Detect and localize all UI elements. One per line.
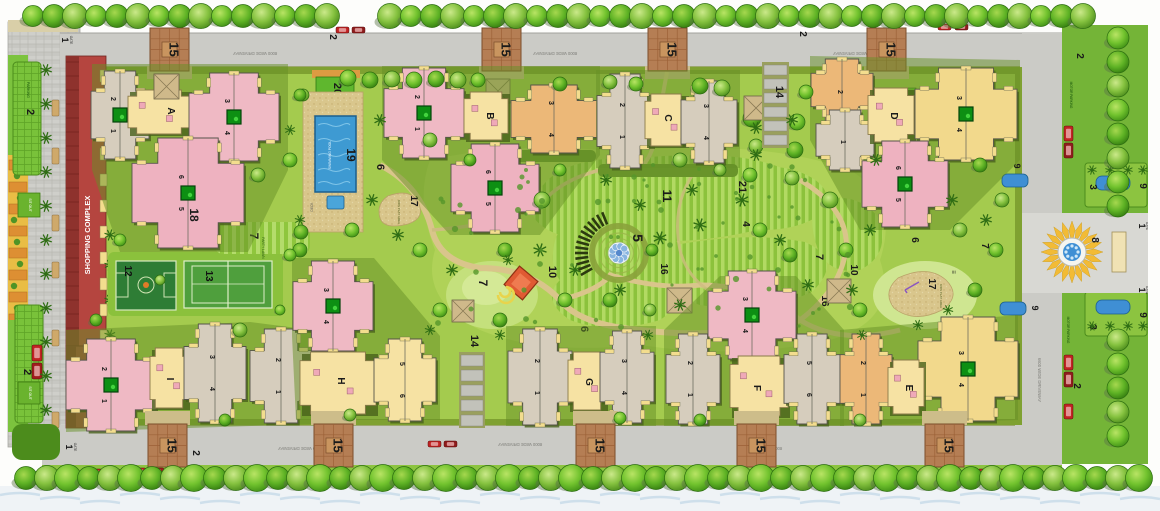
- svg-text:13: 13: [203, 270, 214, 282]
- svg-text:SWIMMING POOL: SWIMMING POOL: [328, 141, 332, 170]
- svg-text:3: 3: [1087, 184, 1098, 190]
- svg-text:3: 3: [223, 99, 230, 103]
- svg-text:8000 WIDE DRIVEWAY: 8000 WIDE DRIVEWAY: [233, 51, 278, 56]
- svg-text:5: 5: [484, 202, 491, 206]
- svg-text:5: 5: [894, 198, 901, 202]
- svg-text:1: 1: [60, 37, 70, 42]
- svg-text:GATE: GATE: [73, 443, 77, 451]
- svg-text:7: 7: [979, 243, 990, 249]
- svg-text:1: 1: [839, 140, 846, 144]
- svg-text:14: 14: [773, 86, 785, 99]
- svg-text:3: 3: [208, 355, 215, 359]
- svg-text:KIDS PLAY AREA: KIDS PLAY AREA: [397, 200, 401, 224]
- svg-text:19: 19: [344, 148, 358, 162]
- svg-text:3: 3: [702, 104, 709, 108]
- svg-text:2: 2: [413, 95, 420, 99]
- svg-text:15: 15: [665, 42, 680, 56]
- svg-text:E: E: [903, 385, 914, 392]
- svg-text:6: 6: [805, 393, 812, 397]
- svg-text:PARKING: PARKING: [26, 82, 30, 98]
- svg-text:2: 2: [836, 90, 843, 94]
- svg-text:I: I: [164, 378, 175, 381]
- svg-text:2: 2: [327, 34, 338, 40]
- svg-text:SHOPPING COMPLEX: SHOPPING COMPLEX: [83, 196, 92, 275]
- svg-text:4: 4: [208, 387, 215, 391]
- svg-text:1: 1: [413, 127, 420, 131]
- svg-text:6: 6: [374, 164, 386, 170]
- svg-text:15: 15: [165, 438, 180, 452]
- svg-text:4: 4: [955, 128, 962, 132]
- svg-text:2: 2: [533, 359, 540, 363]
- svg-text:5: 5: [805, 361, 812, 365]
- svg-text:5: 5: [630, 234, 646, 242]
- svg-text:1: 1: [859, 393, 866, 397]
- svg-text:4: 4: [741, 329, 748, 333]
- svg-text:12: 12: [122, 265, 133, 277]
- svg-text:KIDS PLAY AREA: KIDS PLAY AREA: [939, 284, 943, 308]
- svg-text:6: 6: [484, 170, 491, 174]
- svg-text:5: 5: [177, 207, 184, 211]
- svg-text:6: 6: [177, 175, 184, 179]
- svg-text:GATE: GATE: [1145, 222, 1149, 230]
- svg-text:4: 4: [322, 320, 329, 324]
- svg-text:3: 3: [322, 288, 329, 292]
- svg-text:1: 1: [274, 390, 281, 394]
- svg-text:2: 2: [1074, 53, 1085, 59]
- svg-text:1: 1: [533, 391, 540, 395]
- svg-text:15: 15: [884, 42, 899, 56]
- svg-text:21: 21: [736, 181, 748, 193]
- svg-text:11: 11: [660, 190, 674, 203]
- svg-text:MOTOR PARKING: MOTOR PARKING: [1069, 82, 1073, 109]
- svg-text:4: 4: [547, 133, 554, 137]
- svg-text:3: 3: [741, 297, 748, 301]
- svg-text:F: F: [751, 385, 762, 391]
- svg-text:3: 3: [620, 359, 627, 363]
- svg-text:4: 4: [957, 383, 964, 387]
- svg-text:4: 4: [740, 221, 751, 227]
- svg-text:GATE: GATE: [1145, 286, 1149, 294]
- svg-text:1: 1: [64, 444, 74, 449]
- svg-text:3: 3: [955, 96, 962, 100]
- svg-text:17: 17: [926, 278, 937, 290]
- svg-text:1: 1: [686, 393, 693, 397]
- svg-text:2: 2: [24, 109, 36, 115]
- svg-text:≡: ≡: [950, 270, 956, 274]
- svg-text:6: 6: [894, 166, 901, 170]
- svg-text:6: 6: [909, 237, 920, 243]
- svg-text:15: 15: [942, 438, 957, 452]
- svg-text:2: 2: [21, 369, 33, 375]
- svg-text:2: 2: [797, 31, 808, 37]
- svg-text:15: 15: [593, 438, 608, 452]
- svg-text:4: 4: [620, 391, 627, 395]
- svg-text:5: 5: [398, 362, 405, 366]
- svg-text:PARTY LAWN: PARTY LAWN: [261, 237, 265, 259]
- svg-text:1: 1: [109, 129, 116, 133]
- svg-text:9: 9: [1137, 183, 1148, 189]
- svg-text:2: 2: [686, 361, 693, 365]
- svg-text:15: 15: [331, 438, 346, 452]
- svg-text:2: 2: [859, 361, 866, 365]
- svg-text:1: 1: [618, 135, 625, 139]
- svg-text:SIT OUT: SIT OUT: [28, 198, 32, 211]
- svg-text:9: 9: [1137, 312, 1148, 318]
- svg-text:6: 6: [398, 394, 405, 398]
- svg-text:10: 10: [546, 266, 558, 278]
- svg-text:4: 4: [223, 131, 230, 135]
- svg-text:2: 2: [618, 103, 625, 107]
- svg-text:3: 3: [957, 351, 964, 355]
- svg-text:G: G: [583, 378, 594, 386]
- svg-text:18: 18: [187, 208, 201, 222]
- svg-text:6600 WIDE DRIVEWAY: 6600 WIDE DRIVEWAY: [1037, 358, 1042, 403]
- svg-text:2: 2: [274, 358, 281, 362]
- svg-text:2: 2: [100, 367, 107, 371]
- svg-text:7: 7: [476, 280, 490, 287]
- svg-text:2: 2: [109, 97, 116, 101]
- svg-text:3: 3: [547, 101, 554, 105]
- svg-text:4: 4: [702, 136, 709, 140]
- svg-text:B: B: [484, 112, 495, 119]
- svg-text:D: D: [888, 112, 899, 119]
- svg-text:8: 8: [1089, 237, 1100, 243]
- svg-text:15: 15: [167, 42, 182, 56]
- svg-text:GATE: GATE: [69, 36, 73, 44]
- svg-text:15: 15: [754, 438, 769, 452]
- svg-text:14: 14: [468, 335, 480, 348]
- svg-text:DECK: DECK: [310, 202, 314, 212]
- svg-text:16: 16: [658, 263, 669, 275]
- svg-text:15: 15: [499, 42, 514, 56]
- svg-text:7: 7: [813, 254, 825, 260]
- svg-text:C: C: [662, 114, 673, 121]
- svg-text:1: 1: [100, 399, 107, 403]
- svg-text:A: A: [165, 107, 176, 114]
- svg-text:2: 2: [190, 450, 201, 456]
- svg-text:SIT OUT: SIT OUT: [28, 386, 32, 399]
- svg-text:MOTOR PARKING: MOTOR PARKING: [1066, 317, 1070, 344]
- svg-text:H: H: [335, 377, 346, 384]
- svg-text:8000 WIDE DRIVEWAY: 8000 WIDE DRIVEWAY: [498, 442, 543, 447]
- svg-text:9: 9: [1030, 305, 1040, 310]
- svg-text:8000 WIDE DRIVEWAY: 8000 WIDE DRIVEWAY: [533, 51, 578, 56]
